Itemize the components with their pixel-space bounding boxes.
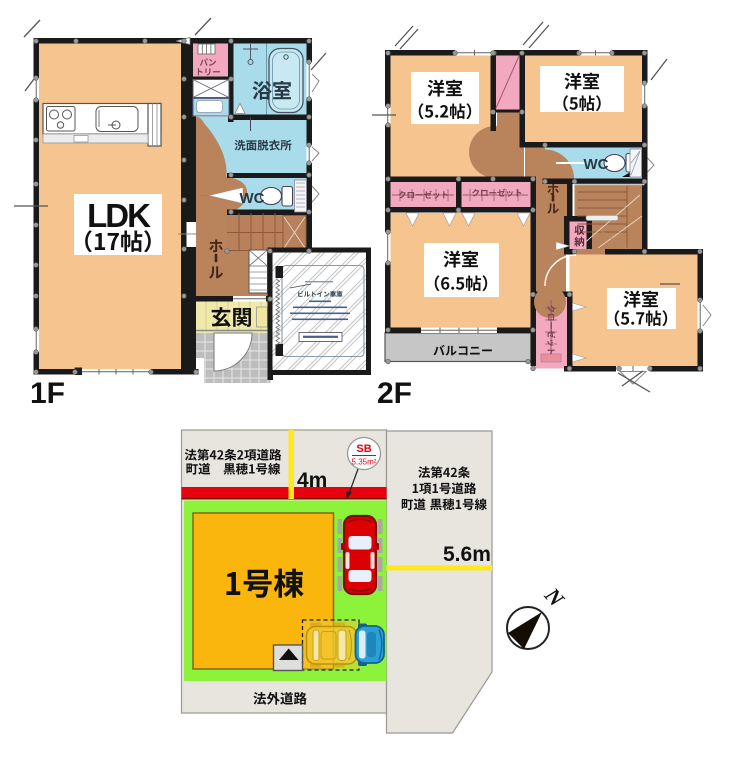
svg-text:WC: WC <box>584 156 609 173</box>
svg-text:5.35m²: 5.35m² <box>352 458 377 467</box>
svg-text:LDK: LDK <box>87 197 151 234</box>
svg-text:N: N <box>539 582 570 612</box>
svg-text:WC: WC <box>240 190 265 207</box>
svg-text:5.6m: 5.6m <box>443 543 491 566</box>
svg-text:1F: 1F <box>30 377 65 410</box>
svg-text:2F: 2F <box>377 377 412 410</box>
svg-text:4m: 4m <box>297 469 327 492</box>
svg-text:SB: SB <box>356 443 371 455</box>
